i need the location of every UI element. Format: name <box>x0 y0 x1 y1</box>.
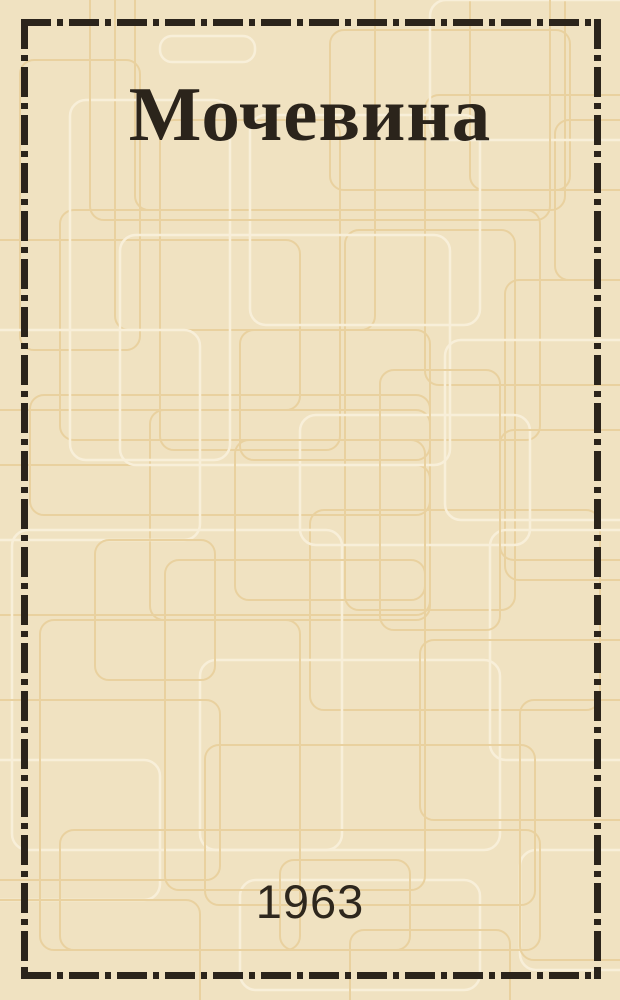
book-cover: Мочевина 1963 <box>0 0 620 1000</box>
border-corner-bottom-right <box>594 972 601 979</box>
border-corner-top-right <box>594 19 601 26</box>
year-label: 1963 <box>0 878 620 925</box>
dash-dot-border-left <box>21 19 28 979</box>
border-corner-bottom-left <box>21 972 28 979</box>
dash-dot-border-bottom <box>21 972 601 979</box>
border-corner-top-left <box>21 19 28 26</box>
book-title: Мочевина <box>0 76 620 153</box>
dash-dot-border-top <box>21 19 601 26</box>
dash-dot-border-right <box>594 19 601 979</box>
